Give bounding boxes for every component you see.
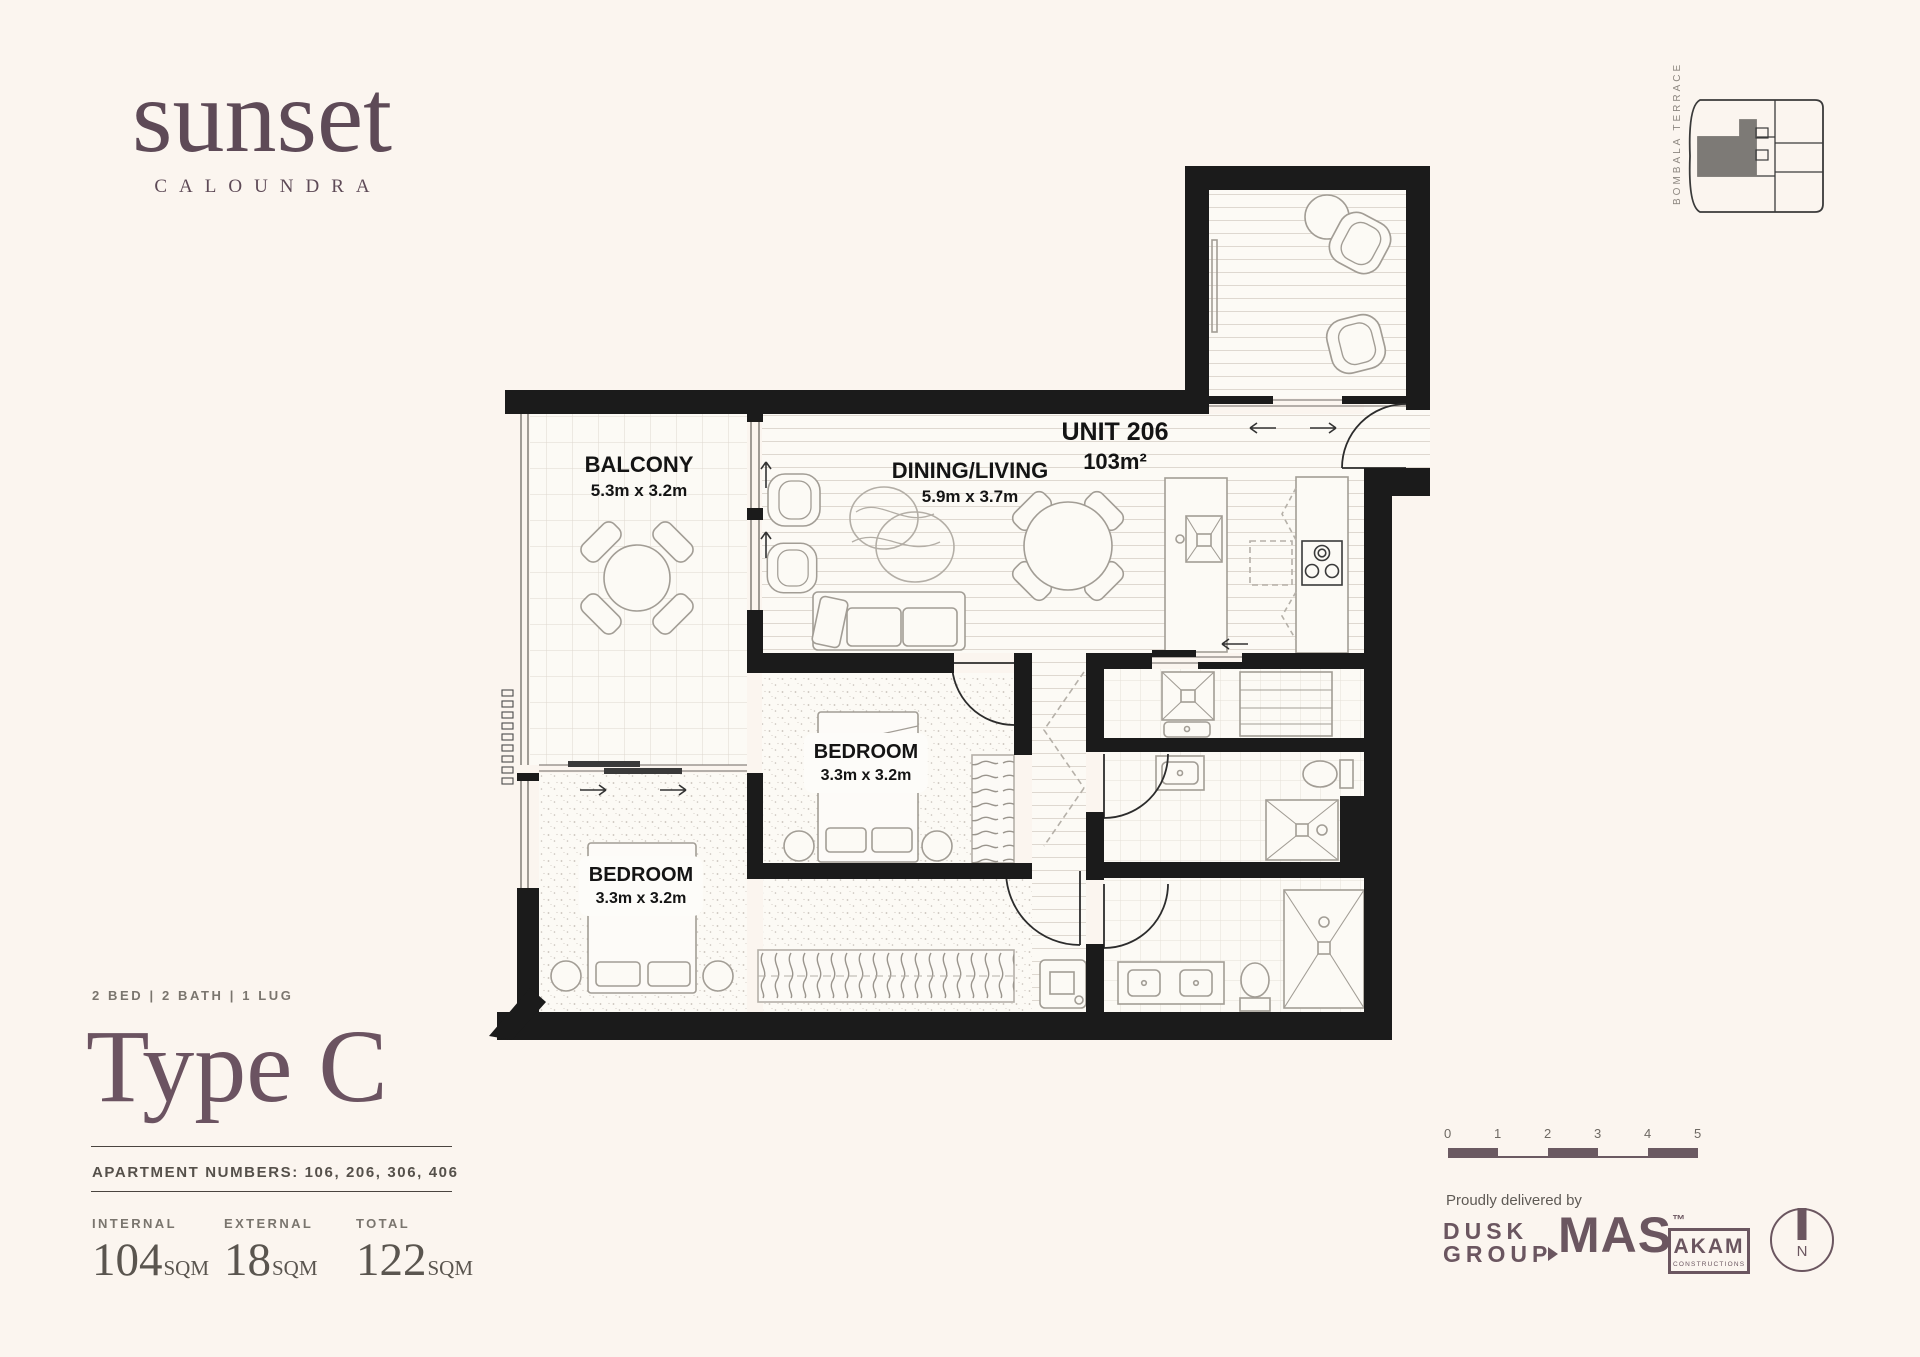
akam-subtitle: CONSTRUCTIONS xyxy=(1673,1261,1745,1268)
dusk-line2: GROUP xyxy=(1443,1243,1552,1266)
floorplan-page: { "brand": { "name": "sunset", "location… xyxy=(0,0,1920,1357)
dusk-arrow-icon xyxy=(1548,1247,1558,1261)
dining-label: DINING/LIVING 5.9m x 3.7m xyxy=(892,458,1048,507)
divider-rule xyxy=(91,1146,452,1147)
bedroom1-dims: 3.3m x 3.2m xyxy=(814,767,918,785)
scale-segment xyxy=(1498,1148,1548,1158)
unit-name: UNIT 206 xyxy=(1062,418,1169,447)
walkthrough-wardrobe xyxy=(758,950,1014,1002)
stat-unit: SQM xyxy=(164,1256,210,1281)
dining-dims: 5.9m x 3.7m xyxy=(892,487,1048,507)
divider-rule xyxy=(91,1191,452,1192)
stat-label: INTERNAL xyxy=(92,1216,222,1231)
stat-total: TOTAL 122SQM xyxy=(356,1216,486,1284)
scale-segment xyxy=(1648,1148,1698,1158)
stat-label: EXTERNAL xyxy=(224,1216,354,1231)
bedroom2-label: BEDROOM 3.3m x 3.2m xyxy=(579,856,703,916)
north-label: N xyxy=(1797,1243,1808,1260)
configuration-line: 2 BED | 2 BATH | 1 LUG xyxy=(92,988,293,1003)
bedroom2-name: BEDROOM xyxy=(589,864,693,887)
scale-bar-segments xyxy=(1448,1148,1698,1158)
scale-tick: 2 xyxy=(1544,1126,1551,1141)
scale-tick: 5 xyxy=(1694,1126,1701,1141)
scale-bar: 0 1 2 3 4 5 xyxy=(1448,1126,1700,1160)
scale-tick: 0 xyxy=(1444,1126,1451,1141)
scale-tick: 3 xyxy=(1594,1126,1601,1141)
stat-value: 122 xyxy=(356,1237,427,1284)
mas-trademark: ™ xyxy=(1672,1212,1686,1227)
mas-logo: MAS™ xyxy=(1558,1210,1686,1260)
bedroom1-label: BEDROOM 3.3m x 3.2m xyxy=(804,733,928,793)
type-title: Type C xyxy=(86,1010,388,1124)
scale-tick: 4 xyxy=(1644,1126,1651,1141)
mas-name: MAS xyxy=(1558,1207,1672,1263)
balcony-dims: 5.3m x 3.2m xyxy=(585,481,694,501)
stat-label: TOTAL xyxy=(356,1216,486,1231)
stat-value: 18 xyxy=(224,1237,271,1284)
dusk-line1: DUSK xyxy=(1443,1220,1558,1243)
stat-unit: SQM xyxy=(272,1256,318,1281)
dusk-group-logo: DUSK GROUP xyxy=(1443,1220,1558,1265)
brand-location: CALOUNDRA xyxy=(88,176,436,198)
scale-segment xyxy=(1548,1148,1598,1158)
akam-logo: AKAM CONSTRUCTIONS xyxy=(1668,1228,1750,1274)
bedroom1-name: BEDROOM xyxy=(814,741,918,764)
scale-segment xyxy=(1448,1148,1498,1158)
scale-tick: 1 xyxy=(1494,1126,1501,1141)
bedroom2-dims: 3.3m x 3.2m xyxy=(589,890,693,908)
akam-name: AKAM xyxy=(1673,1235,1745,1259)
brand-logo: sunset CALOUNDRA xyxy=(88,60,436,198)
north-needle xyxy=(1798,1208,1807,1240)
scale-segment xyxy=(1598,1148,1648,1158)
stat-value: 104 xyxy=(92,1237,163,1284)
unit-area: 103m² xyxy=(1062,449,1169,475)
dining-name: DINING/LIVING xyxy=(892,458,1048,484)
north-arrow: N xyxy=(1770,1208,1834,1272)
balcony-label: BALCONY 5.3m x 3.2m xyxy=(585,452,694,501)
balcony-name: BALCONY xyxy=(585,452,694,478)
keyplan-diagram xyxy=(1690,100,1823,212)
stat-unit: SQM xyxy=(428,1256,474,1281)
brand-name: sunset xyxy=(88,60,436,174)
stat-internal: INTERNAL 104SQM xyxy=(92,1216,222,1284)
unit-label: UNIT 206 103m² xyxy=(1062,418,1169,475)
keyplan-street-label: BOMBALA TERRACE xyxy=(1672,85,1686,205)
stat-external: EXTERNAL 18SQM xyxy=(224,1216,354,1284)
apartment-numbers: APARTMENT NUMBERS: 106, 206, 306, 406 xyxy=(92,1164,459,1181)
